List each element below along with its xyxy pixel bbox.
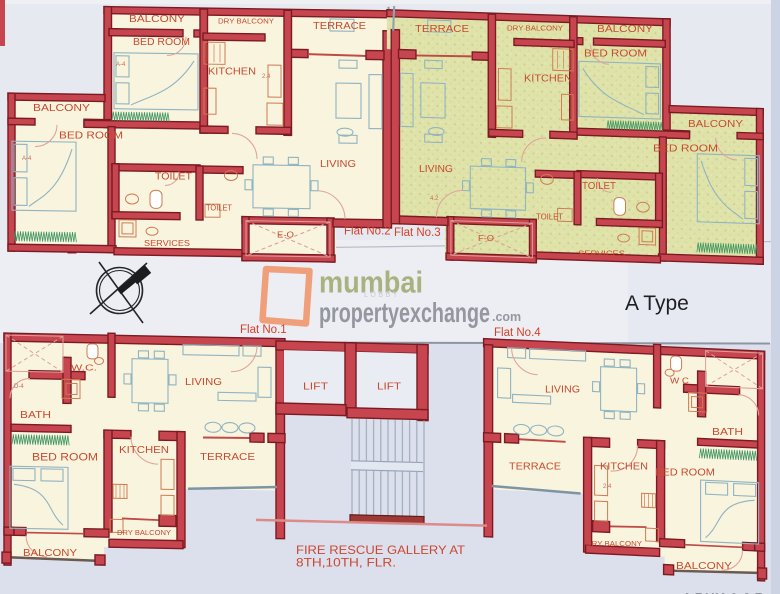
- svg-text:TERRACE: TERRACE: [509, 462, 561, 473]
- svg-text:BATH: BATH: [20, 410, 51, 421]
- svg-text:4.2: 4.2: [430, 196, 439, 202]
- svg-text:TERRACE: TERRACE: [415, 24, 469, 35]
- svg-text:F-O: F-O: [478, 233, 495, 243]
- svg-text:LIVING: LIVING: [185, 377, 222, 388]
- svg-text:TERRACE: TERRACE: [200, 452, 255, 463]
- svg-text:A Type: A Type: [625, 292, 689, 315]
- svg-text:2.4: 2.4: [262, 74, 271, 80]
- svg-text:KITCHEN: KITCHEN: [208, 67, 256, 78]
- svg-text:BALCONY: BALCONY: [23, 548, 77, 559]
- svg-text:BALCONY: BALCONY: [129, 14, 185, 25]
- svg-text:.com: .com: [492, 310, 521, 324]
- svg-text:BALCONY: BALCONY: [688, 119, 743, 130]
- svg-text:BATH: BATH: [712, 427, 743, 438]
- svg-text:TERRACE: TERRACE: [313, 21, 366, 32]
- svg-text:1 BHK & 2 B: 1 BHK & 2 B: [683, 590, 765, 594]
- svg-text:Flat No.3: Flat No.3: [394, 227, 441, 239]
- svg-text:A-4: A-4: [22, 156, 32, 162]
- svg-text:KITCHEN: KITCHEN: [119, 445, 169, 456]
- svg-text:W C: W C: [670, 376, 689, 386]
- svg-text:A-4: A-4: [116, 62, 126, 68]
- svg-text:LIVING: LIVING: [320, 159, 356, 170]
- svg-text:BALCONY: BALCONY: [676, 561, 732, 572]
- svg-text:BALCONY: BALCONY: [33, 103, 90, 114]
- svg-text:DRY BALCONY: DRY BALCONY: [117, 528, 171, 537]
- svg-text:KITCHEN: KITCHEN: [600, 462, 648, 473]
- svg-text:Flat No.4: Flat No.4: [494, 327, 541, 339]
- svg-text:DRY BALCONY: DRY BALCONY: [218, 17, 274, 26]
- svg-text:LIVING: LIVING: [545, 385, 580, 396]
- svg-text:TOILET: TOILET: [206, 203, 232, 213]
- svg-text:E-O: E-O: [277, 230, 295, 240]
- svg-text:DRY BALCONY: DRY BALCONY: [507, 24, 563, 33]
- svg-text:LIFT: LIFT: [303, 382, 328, 393]
- svg-text:BED ROOM: BED ROOM: [133, 37, 190, 48]
- svg-text:TOILET: TOILET: [155, 172, 192, 183]
- svg-text:Flat No.2: Flat No.2: [344, 226, 391, 238]
- svg-text:BED ROOM: BED ROOM: [655, 468, 715, 479]
- svg-text:LIVING: LIVING: [419, 164, 453, 175]
- svg-text:KITCHEN: KITCHEN: [524, 74, 572, 85]
- svg-text:D-4: D-4: [14, 384, 24, 390]
- svg-text:2.4: 2.4: [603, 484, 612, 490]
- svg-text:propertyexchange: propertyexchange: [319, 297, 490, 328]
- svg-text:BED ROOM: BED ROOM: [653, 144, 718, 155]
- svg-text:LIFT: LIFT: [377, 382, 401, 393]
- svg-text:TOILET: TOILET: [582, 181, 616, 192]
- svg-text:BED ROOM: BED ROOM: [584, 49, 647, 60]
- svg-text:DRY BALCONY: DRY BALCONY: [586, 539, 642, 548]
- svg-text:8TH,10TH, FLR.: 8TH,10TH, FLR.: [296, 556, 396, 570]
- svg-text:BALCONY: BALCONY: [597, 24, 653, 35]
- svg-text:SERVICES: SERVICES: [578, 249, 625, 259]
- svg-text:W.C.: W.C.: [71, 363, 97, 373]
- svg-text:BED ROOM: BED ROOM: [59, 131, 123, 142]
- svg-text:TOILET: TOILET: [536, 212, 563, 222]
- svg-text:SERVICES: SERVICES: [144, 238, 190, 248]
- svg-text:BED ROOM: BED ROOM: [32, 452, 98, 464]
- svg-text:Flat No.1: Flat No.1: [240, 324, 287, 336]
